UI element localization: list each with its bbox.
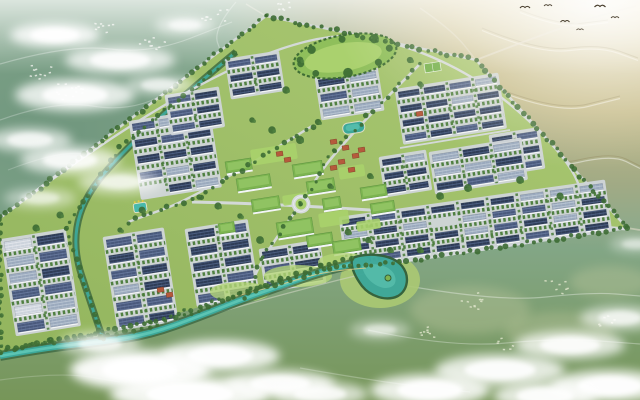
industrial-park-aerial-rendering bbox=[0, 0, 640, 400]
aerial-render-viewport bbox=[0, 0, 640, 400]
